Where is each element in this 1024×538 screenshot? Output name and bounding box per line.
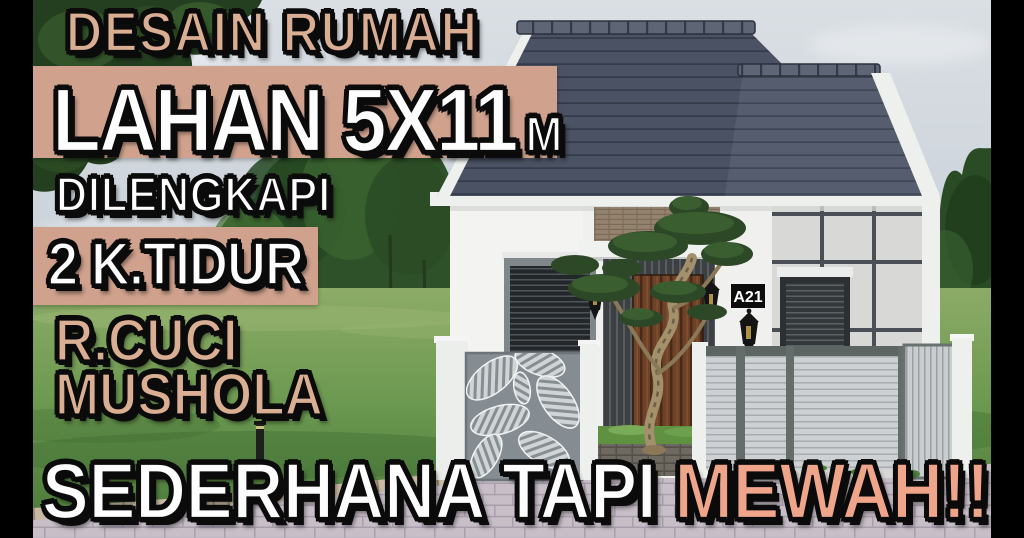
tagline: SEDERHANA TAPIMEWAH!!	[42, 452, 989, 530]
house-number-plate: A21	[730, 283, 766, 309]
feature-bedrooms: 2 K.TIDUR	[48, 234, 303, 294]
title-desain-rumah: DESAIN RUMAH	[66, 4, 479, 60]
feature-prayer-room: MUSHOLA	[55, 365, 323, 424]
letterbox-bar-right	[991, 0, 1024, 538]
tagline-white-text: SEDERHANA TAPI	[42, 448, 656, 535]
letterbox-bar-left	[0, 0, 33, 538]
thumbnail-stage: A21	[0, 0, 1024, 538]
land-size-text: LAHAN 5X11	[52, 70, 517, 170]
roof-main-ridge	[517, 21, 755, 34]
title-land-size: LAHAN 5X11M	[52, 76, 562, 166]
tagline-accent-text: MEWAH!!	[674, 448, 989, 535]
house-number-text: A21	[733, 289, 762, 306]
land-unit-text: M	[526, 107, 563, 162]
label-dilengkapi: DILENGKAPI	[56, 172, 331, 220]
roof-right-ridge	[738, 64, 880, 76]
